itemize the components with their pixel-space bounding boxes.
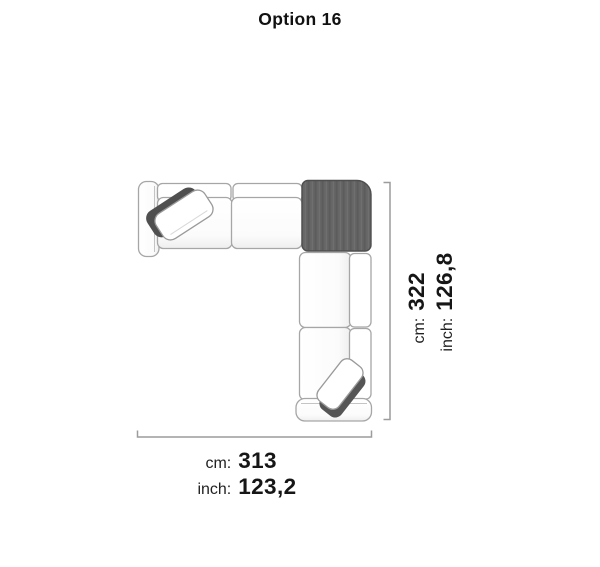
dimension-line-height xyxy=(384,183,391,420)
backrest-cushion-3 xyxy=(350,254,372,328)
corner-module-highlighted xyxy=(302,181,371,252)
height-cm-value: 322 xyxy=(405,252,428,310)
page: Option 16 xyxy=(0,0,600,567)
seat-cushion-3 xyxy=(300,253,352,328)
width-inch-label: inch: xyxy=(197,478,231,501)
height-cm-label: cm: xyxy=(408,318,431,352)
height-inch-value: 126,8 xyxy=(433,252,456,310)
width-inch-value: 123,2 xyxy=(238,475,296,498)
dimension-line-width xyxy=(138,431,372,438)
width-cm-label: cm: xyxy=(197,452,231,475)
dimension-height-text: cm: 322 inch: 126,8 xyxy=(405,237,461,367)
dimension-width-text: cm: 313 inch: 123,2 xyxy=(172,449,322,497)
height-inch-label: inch: xyxy=(436,318,459,352)
seat-cushion-2 xyxy=(232,198,303,249)
width-cm-value: 313 xyxy=(238,449,296,472)
